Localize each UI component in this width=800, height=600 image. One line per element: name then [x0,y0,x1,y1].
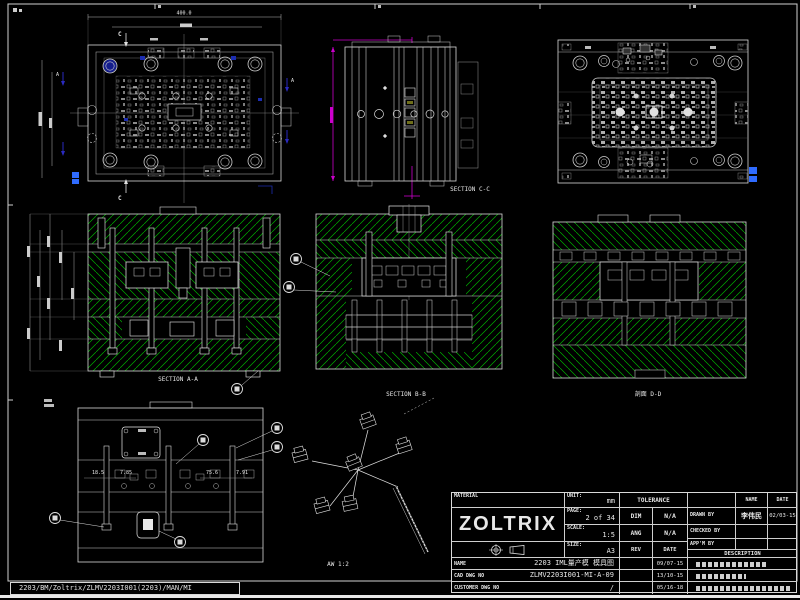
rev-cell-1 [620,558,653,570]
dim-label: 75.6 [206,470,218,476]
page-cell: PAGE:2 of 34 [565,508,620,525]
balloon-callout [175,537,186,548]
dim-label: 18.5 [92,470,104,476]
section-view-bottom-left: 18.5 7.85 75.6 7.91 [44,399,283,562]
material-cell: MATERIAL [452,493,565,508]
projection-symbol-cell [452,542,565,558]
unit-cell: UNIT:mm [565,493,620,508]
rev-date-header-cell: DATE [653,542,688,558]
blank-header [688,493,736,508]
sheet-bottom-rule [0,595,800,598]
section-dd-label: 剖面 D-D [635,390,662,398]
elevation-view-section-cc: SECTION C-C [330,36,490,199]
date-cell-1: 09/07-15 [653,558,688,570]
plan-view-top-right [558,40,757,183]
approved-by-date-cell [768,539,797,550]
rev-header-cell: REV [620,542,653,558]
section-view-a-a: SECTION A-A [27,207,280,395]
dim-label-cell: DIM [620,508,653,525]
row-name-cell: NAME2203 IML量产模 模具图 [452,558,620,570]
size-cell: SIZE:A3 [565,542,620,558]
svg-text:C: C [118,31,122,38]
projection-symbol [488,544,528,556]
scale-cell: SCALE:1:5 [565,525,620,542]
balloon-callout [50,513,61,524]
section-cc-label: SECTION C-C [450,186,490,193]
rev-cell-2 [620,570,653,582]
description-row-1 [688,558,797,570]
dim-value-cell: N/A [653,508,688,525]
section-aa-label: SECTION A-A [158,376,198,383]
row-dwg-cell: CAD DWG NOZLMV2203I001-MI-A-09 [452,570,620,582]
description-row-2 [688,570,797,582]
plan-view-top-left: 400.0 C C A A [39,11,300,204]
date-cell-2: 13/10-15 [653,570,688,582]
file-path-strip: 2203/BM/Zoltrix/ZLMV2203I001(2203)/MAN/M… [10,582,240,595]
balloon-callout [272,442,283,453]
checked-by-date-cell [768,525,797,539]
dim-label: 7.91 [236,470,248,476]
approved-by-label-cell: APP'M BY [688,539,736,550]
checked-by-name-cell [736,525,768,539]
cad-drawing-sheet: 400.0 C C A A [0,0,800,600]
svg-text:A: A [291,78,294,84]
isometric-runner-view: AW 1:2 [291,398,434,568]
title-block: MATERIAL UNIT:mm TOLERANCE NAME DATE ZOL… [451,492,797,593]
svg-text:A: A [56,72,59,78]
detail-scale-label: AW 1:2 [327,561,349,568]
rev-cell-3 [620,582,653,594]
dim-label: 7.85 [120,470,132,476]
tolerance-header: TOLERANCE [620,493,688,508]
section-view-d-d: 剖面 D-D [553,215,746,398]
balloon-callout [284,282,295,293]
date-cell-3: 05/16-18 [653,582,688,594]
checked-by-label-cell: CHECKED BY [688,525,736,539]
balloon-callout [232,384,243,395]
balloon-callout [272,423,283,434]
row-review-cell: CUSTOMER DWG NO/ [452,582,620,594]
description-row-3 [688,582,797,594]
ang-value-cell: N/A [653,525,688,542]
approved-by-name-cell [736,539,768,550]
balloon-callout [291,254,302,265]
dim-top-label: 400.0 [176,11,191,17]
balloon-callout [198,435,209,446]
section-bb-label: SECTION B-B [386,391,426,398]
section-view-b-b: SECTION B-B [284,204,503,398]
company-logo-text: ZOLTRIX [452,508,565,542]
drawn-by-name-cell: 李伟民 [736,508,768,525]
drawn-by-label-cell: DRAWN BY [688,508,736,525]
date-col-header: DATE [768,493,797,508]
ang-label-cell: ANG [620,525,653,542]
drawn-by-date-cell: 02/03-15 [768,508,797,525]
svg-text:C: C [118,195,122,202]
name-col-header: NAME [736,493,768,508]
description-header-cell: DESCRIPTION [688,550,797,558]
